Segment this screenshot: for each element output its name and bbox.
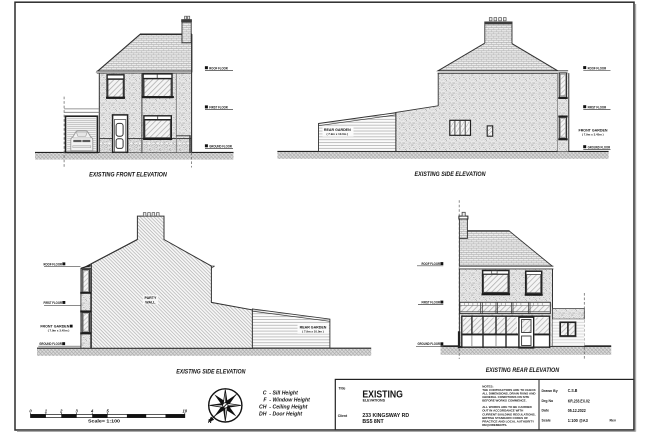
svg-text:Title: Title [339, 387, 346, 391]
svg-text:FIRST FLOOR: FIRST FLOOR [209, 106, 228, 110]
svg-text:Client: Client [338, 414, 348, 418]
svg-text:FIRST FLOOR: FIRST FLOOR [422, 300, 441, 304]
svg-text:GROUND FLOOR: GROUND FLOOR [588, 145, 611, 149]
svg-text:GROUND FLOOR: GROUND FLOOR [39, 342, 62, 346]
svg-text:ROOF FLOOR: ROOF FLOOR [44, 263, 63, 267]
svg-text:KR.233.EX.02: KR.233.EX.02 [568, 398, 590, 403]
svg-text:EXISTING SIDE ELEVATION: EXISTING SIDE ELEVATION [176, 369, 246, 376]
svg-text:- Window Height: - Window Height [269, 398, 310, 404]
svg-text:Date: Date [542, 409, 550, 413]
svg-text:DH: DH [259, 412, 267, 418]
svg-text:- Sill Height: - Sill Height [269, 391, 298, 397]
svg-text:REQUIREMENTS.: REQUIREMENTS. [482, 423, 507, 427]
svg-text:ROOF FLOOR: ROOF FLOOR [422, 262, 441, 266]
svg-text:C.S.B: C.S.B [568, 388, 578, 393]
svg-text:FIRST FLOOR: FIRST FLOOR [588, 105, 607, 109]
svg-text:( 7.9m x 3.45m ): ( 7.9m x 3.45m ) [48, 329, 70, 333]
svg-text:ELEVATIONS: ELEVATIONS [363, 399, 386, 403]
svg-text:Rev: Rev [610, 419, 616, 423]
svg-text:05.12.2022: 05.12.2022 [568, 408, 586, 413]
svg-text:Drawn By: Drawn By [542, 389, 558, 393]
svg-text:10: 10 [183, 409, 188, 414]
svg-text:N: N [208, 419, 212, 425]
svg-text:Scale= 1:100: Scale= 1:100 [88, 419, 121, 424]
svg-text:EXISTING SIDE ELEVATION: EXISTING SIDE ELEVATION [415, 171, 487, 178]
svg-text:BS5 8NT: BS5 8NT [362, 419, 384, 425]
svg-text:Drg No: Drg No [542, 399, 554, 403]
svg-text:( 7.9m x 3.45m ): ( 7.9m x 3.45m ) [582, 132, 604, 136]
svg-text:BEFORE WORKS COMMENCE.: BEFORE WORKS COMMENCE. [482, 399, 527, 403]
svg-text:- Door Height: - Door Height [269, 412, 302, 418]
svg-text:Scale: Scale [542, 419, 551, 423]
svg-text:( 7.9m x 10.0m ): ( 7.9m x 10.0m ) [327, 132, 349, 136]
svg-text:EXISTING FRONT ELEVATION: EXISTING FRONT ELEVATION [89, 172, 167, 179]
svg-text:WALL: WALL [145, 300, 156, 304]
svg-text:1:100 @A3: 1:100 @A3 [568, 418, 588, 423]
svg-text:C: C [263, 391, 267, 397]
svg-text:GROUND FLOOR: GROUND FLOOR [209, 145, 232, 149]
svg-text:- Ceiling Height: - Ceiling Height [269, 405, 307, 411]
svg-text:( 7.9m x 10.0m ): ( 7.9m x 10.0m ) [302, 330, 324, 334]
svg-text:PARTY: PARTY [144, 296, 157, 300]
svg-text:ROOF FLOOR: ROOF FLOOR [588, 66, 607, 70]
svg-text:EXISTING REAR ELEVATION: EXISTING REAR ELEVATION [486, 367, 560, 374]
svg-text:FIRST FLOOR: FIRST FLOOR [44, 301, 63, 305]
svg-text:ROOF FLOOR: ROOF FLOOR [209, 66, 228, 70]
svg-text:CH: CH [259, 405, 267, 411]
svg-text:GROUND FLOOR: GROUND FLOOR [418, 342, 441, 346]
